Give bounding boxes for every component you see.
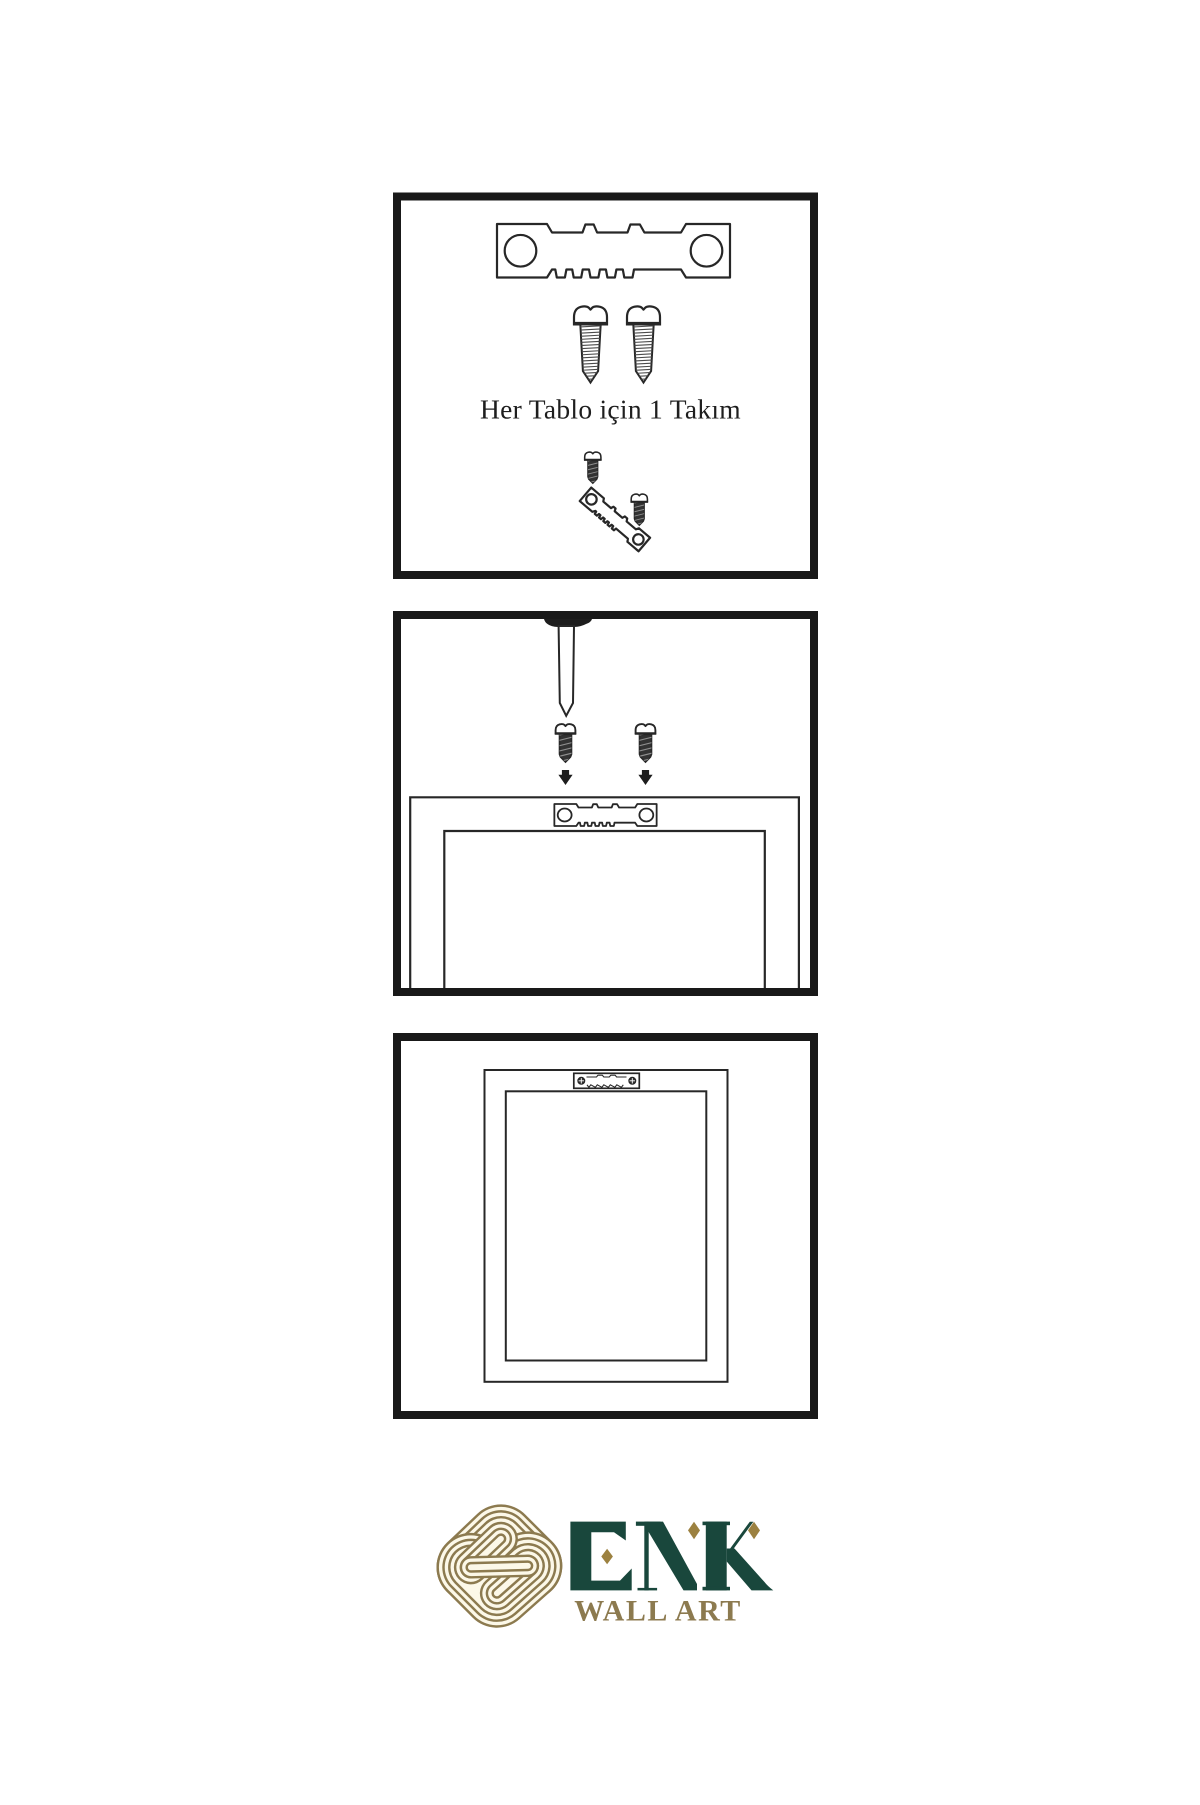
svg-text:WALL ART: WALL ART (574, 1594, 740, 1627)
svg-text:Her Tablo için 1 Takım: Her Tablo için 1 Takım (480, 394, 741, 425)
